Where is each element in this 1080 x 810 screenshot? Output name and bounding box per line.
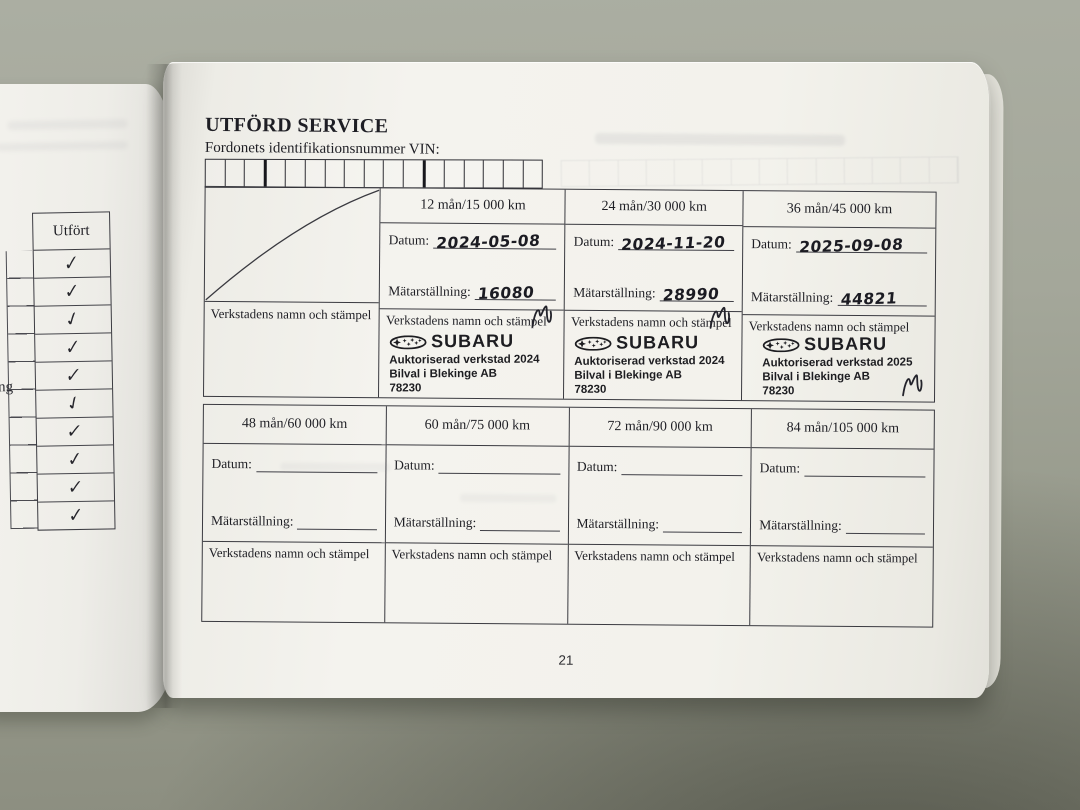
interval-header: 72 mån/90 000 km [569,408,751,448]
label-column: Verkstadens namn och stämpel [204,187,380,397]
page-number: 21 [201,650,931,671]
checkmark-icon: ✓ [64,251,79,277]
stamp-authorized: Auktoriserad verkstad 2025 [762,355,928,370]
subaru-stamp: SUBARU Auktoriserad verkstad 2025 Bilval… [762,333,928,398]
checklist-row: ✓ [37,417,113,446]
datum-label: Datum: [760,460,801,476]
matarstallning-line [846,516,925,535]
stamp-label: Verkstadens namn och stämpel [574,548,735,564]
cutoff-word-fragment: ng [0,379,13,396]
interval-column-24man: 24 mån/30 000 km Datum:2024-11-20 Mätars… [563,190,742,400]
interval-column-36man: 36 mån/45 000 km Datum:2025-09-08 Mätars… [741,191,936,402]
checklist-row: ✓ [37,445,113,474]
stamp-brand: SUBARU [432,331,515,353]
checkmark-icon: ✓ [68,504,84,528]
stamp-label: Verkstadens namn och stämpel [205,302,380,327]
datum-line: 2025-09-08 [796,235,928,254]
stamp-label: Verkstadens namn och stämpel [391,546,552,562]
interval-header: 48 mån/60 000 km [204,405,386,445]
utfort-column: Utfört ✓ ✓ ✓ ✓ ✓ ✓ ✓ ✓ ✓ ✓ [32,211,116,530]
checkmark-icon: ✓ [66,420,84,443]
interval-column-12man: 12 mån/15 000 km Datum:2024-05-08 Mätars… [378,188,565,398]
stamp-postal-code: 78230 [575,382,736,397]
matarstallning-line: 44821 [837,288,927,307]
checklist-row: ✓ [35,305,111,334]
stamp-label: Verkstadens namn och stämpel [757,549,918,565]
subaru-stamp: SUBARU Auktoriserad verkstad 2024 Bilval… [574,332,735,397]
checkmark-icon: ✓ [65,364,83,388]
interval-header: 24 mån/30 000 km [566,190,743,227]
vin-label: Fordonets identifikationsnummer VIN: [205,140,440,159]
subaru-stamp: SUBARU Auktoriserad verkstad 2024 Bilval… [390,330,558,395]
stamp-company: Bilval i Blekinge AB [762,369,928,384]
checklist-row: ✓ [34,249,110,278]
matarstallning-label: Mätarställning: [751,289,834,306]
datum-line: 2024-11-20 [618,232,734,251]
bleedthrough-vin-boxes [561,156,959,187]
matarstallning-label: Mätarställning: [211,513,294,530]
vin-box-row [205,159,543,189]
datum-line: 2024-05-08 [433,231,557,250]
left-page-content: ng Utfört ✓ ✓ ✓ ✓ ✓ ✓ ✓ ✓ ✓ ✓ [0,82,178,713]
stamp-brand: SUBARU [804,334,887,356]
stamp-postal-code: 78230 [390,380,558,395]
signature-scribble-icon [530,302,554,330]
interval-column-48man: 48 mån/60 000 km Datum: Mätarställning: … [202,405,385,622]
matarstallning-label: Mätarställning: [573,285,656,302]
interval-fields: Datum:2024-05-08 Mätarställning:16080 [380,224,565,311]
datum-line [621,457,742,476]
subaru-logo-icon [390,335,428,349]
datum-label: Datum: [394,457,435,473]
interval-fields: Datum: Mätarställning: [203,444,386,543]
interval-column-60man: 60 mån/75 000 km Datum: Mätarställning: … [384,406,568,623]
checkmark-icon: ✓ [64,280,80,304]
stamp-cell: Verkstadens namn och stämpel [564,311,741,400]
stamp-cell: Verkstadens namn och stämpel [379,309,564,398]
checkmark-icon: ✓ [67,448,84,472]
matarstallning-line [297,512,376,531]
stamp-label: Verkstadens namn och stämpel [749,318,910,334]
checklist-row: ✓ [35,333,111,362]
stamp-brand: SUBARU [616,332,699,354]
datum-label: Datum: [577,459,618,475]
datum-line [804,459,925,478]
matarstallning-label: Mätarställning: [394,514,477,531]
service-table-12-36: Verkstadens namn och stämpel 12 mån/15 0… [203,186,937,403]
interval-fields: Datum:2024-11-20 Mätarställning:28990 [565,225,742,312]
checkmark-icon: ✓ [63,307,83,333]
matarstallning-line [663,514,742,533]
subaru-logo-icon [762,338,800,352]
right-page: UTFÖRD SERVICE Fordonets identifikations… [163,62,989,698]
handwritten-date: 2024-05-08 [435,232,541,253]
handwritten-date: 2025-09-08 [798,236,904,257]
subaru-logo-icon [575,337,613,351]
datum-label: Datum: [751,236,792,252]
stamp-company: Bilval i Blekinge AB [575,368,736,383]
matarstallning-label: Mätarställning: [759,517,842,534]
interval-header: 12 mån/15 000 km [381,188,565,225]
stamp-company: Bilval i Blekinge AB [390,366,558,381]
matarstallning-label: Mätarställning: [576,516,659,533]
interval-header: 84 mån/105 000 km [752,409,934,449]
checklist-row: ✓ [36,389,112,418]
stamp-cell: Verkstadens namn och stämpel [750,546,932,626]
interval-header: 60 mån/75 000 km [386,406,568,446]
matarstallning-line: 28990 [660,283,734,302]
handwritten-odometer: 16080 [477,283,535,303]
utfort-column-header: Utfört [33,212,110,250]
datum-label: Datum: [574,234,615,250]
handwritten-odometer: 28990 [662,285,720,305]
checkmark-icon: ✓ [63,391,86,416]
stamp-authorized: Auktoriserad verkstad 2024 [390,352,558,367]
stamp-cell: Verkstadens namn och stämpel [385,543,567,623]
matarstallning-label: Mätarställning: [388,283,471,300]
interval-header: 36 mån/45 000 km [743,191,935,229]
bleedthrough-smudge [7,119,127,130]
stamp-cell: Verkstadens namn och stämpel [568,545,750,625]
stamp-cell: Verkstadens namn och stämpel [742,315,935,402]
datum-label: Datum: [211,456,252,472]
stamp-authorized: Auktoriserad verkstad 2024 [575,354,736,369]
signature-scribble-icon [708,304,732,332]
stamp-cell: Verkstadens namn och stämpel [202,542,384,622]
checklist-row: ✓ [34,277,110,306]
right-page-content: UTFÖRD SERVICE Fordonets identifikations… [159,62,990,704]
service-table-48-84: 48 mån/60 000 km Datum: Mätarställning: … [201,404,935,628]
bleedthrough-smudge [0,141,128,151]
interval-fields: Datum: Mätarställning: [751,448,934,547]
stamp-postal-code: 78230 [762,383,928,398]
interval-column-72man: 72 mån/90 000 km Datum: Mätarställning: … [567,408,751,625]
interval-fields: Datum:2025-09-08 Mätarställning:44821 [743,227,936,316]
interval-fields: Datum: Mätarställning: [568,447,751,546]
page-title: UTFÖRD SERVICE [205,114,388,138]
checklist-row: ✓ [36,361,112,390]
matarstallning-line: 16080 [475,282,557,301]
left-page: ng Utfört ✓ ✓ ✓ ✓ ✓ ✓ ✓ ✓ ✓ ✓ [0,84,172,712]
interval-column-84man: 84 mån/105 000 km Datum: Mätarställning:… [749,409,933,626]
datum-line [256,454,377,473]
interval-fields: Datum: Mätarställning: [386,445,569,544]
datum-line [439,456,560,475]
bleedthrough-text [595,133,845,146]
service-booklet-photo: ng Utfört ✓ ✓ ✓ ✓ ✓ ✓ ✓ ✓ ✓ ✓ UTFÖRD SER… [0,0,1080,810]
handwritten-odometer: 44821 [839,289,897,309]
stamp-label: Verkstadens namn och stämpel [386,312,547,328]
checklist-row: ✓ [38,473,114,502]
matarstallning-line [480,513,559,532]
checkmark-icon: ✓ [68,476,84,499]
datum-label: Datum: [389,233,430,249]
diagonal-strikeout-cell [205,187,380,303]
checklist-row: ✓ [38,501,114,529]
stamp-label: Verkstadens namn och stämpel [209,545,370,561]
checkmark-icon: ✓ [66,335,81,360]
handwritten-date: 2024-11-20 [620,233,726,254]
